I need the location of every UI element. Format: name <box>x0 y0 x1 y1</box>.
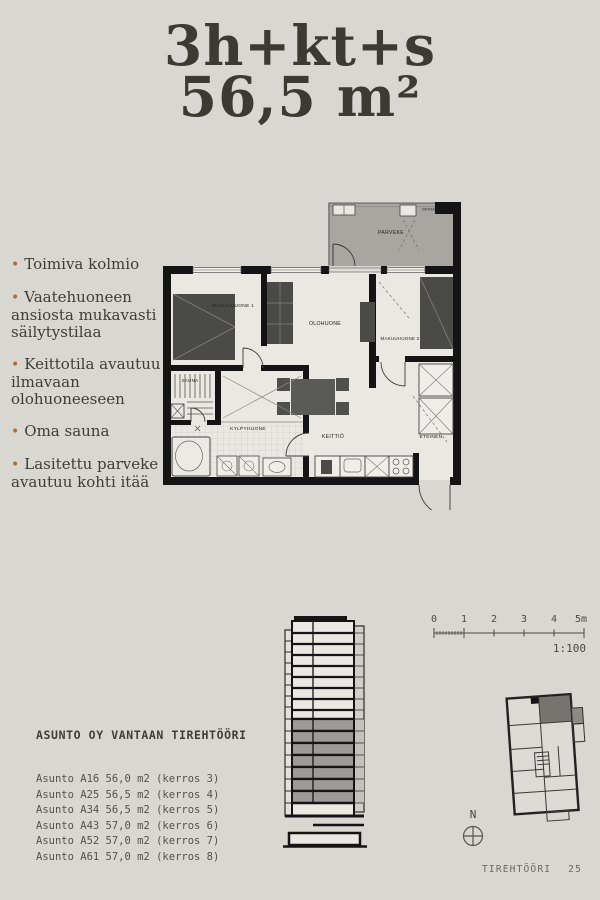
windows <box>193 268 425 273</box>
project-name: ASUNTO OY VANTAAN TIREHTÖÖRI <box>36 728 266 742</box>
bullet-icon: • <box>11 257 19 273</box>
hall-closets <box>419 364 453 434</box>
feature-item: •Oma sauna <box>11 423 163 441</box>
scale-tick-2: 2 <box>491 614 497 625</box>
north-label: N <box>470 808 477 821</box>
scale-tick-5: 5m <box>575 614 587 625</box>
floor-plan-svg: PARVEKE KIINTEÄ LASITUS <box>163 198 463 510</box>
page-title: 3h+kt+s 56,5 m² <box>0 20 600 122</box>
bullet-icon: • <box>11 457 19 473</box>
scale-tick-4: 4 <box>551 614 557 625</box>
project-info: ASUNTO OY VANTAAN TIREHTÖÖRI Asunto A16 … <box>36 728 266 866</box>
north-icon: N <box>458 806 490 852</box>
scale-ratio: 1:100 <box>553 642 586 655</box>
room-label-parveke: PARVEKE <box>378 230 404 236</box>
dining-table <box>291 379 335 415</box>
building-section <box>283 616 373 849</box>
unit-highlight <box>539 695 572 723</box>
apartment-list-item: Asunto A16 56,0 m2 (kerros 3) <box>36 772 266 788</box>
apartment-list-item: Asunto A61 57,0 m2 (kerros 8) <box>36 850 266 866</box>
bullet-icon: • <box>11 290 19 306</box>
building-section-svg <box>283 616 373 849</box>
site-plan <box>497 690 599 842</box>
balcony: PARVEKE KIINTEÄ LASITUS <box>328 202 461 266</box>
bathtub <box>172 437 210 476</box>
scale-bar: 0 1 2 3 4 5m 1:100 <box>430 611 590 657</box>
apartment-list-item: Asunto A25 56,5 m2 (kerros 4) <box>36 788 266 804</box>
bullet-icon: • <box>11 357 19 373</box>
bullet-icon: • <box>11 424 19 440</box>
apartment-list-item: Asunto A43 57,0 m2 (kerros 6) <box>36 819 266 835</box>
scale-bar-svg: 0 1 2 3 4 5m 1:100 <box>430 611 590 657</box>
scale-tick-0: 0 <box>431 614 437 625</box>
site-plan-svg <box>497 690 599 842</box>
stove <box>389 456 413 477</box>
feature-item: •Keittotila avautuu ilmavaan olohuoneese… <box>11 356 163 408</box>
feature-list: •Toimiva kolmio •Vaatehuoneen ansiosta m… <box>11 256 163 506</box>
balcony-glazing-note: KIINTEÄ LASITUS <box>422 208 449 212</box>
page-title-area: 56,5 m² <box>0 71 600 122</box>
room-label-kylpyhuone: KYLPYHUONE <box>230 426 266 432</box>
apartment-list-item: Asunto A34 56,5 m2 (kerros 5) <box>36 803 266 819</box>
room-label-sauna: SAUNA <box>182 378 199 383</box>
room-label-makuuhuone2: MAKUUHUONE 2 <box>381 336 420 341</box>
washbasin <box>263 458 291 476</box>
room-label-keittio: KEITTIÖ <box>322 433 344 440</box>
footer-project: TIREHTÖÖRI <box>482 864 551 875</box>
room-label-eteinen: ETEINEN <box>420 434 443 440</box>
room-label-makuuhuone1: MAKUUHUONE 1 <box>212 303 254 309</box>
apartment-list-item: Asunto A52 57,0 m2 (kerros 7) <box>36 834 266 850</box>
kitchen-counter <box>315 456 413 477</box>
floor-plan: PARVEKE KIINTEÄ LASITUS <box>163 198 463 510</box>
apartment-list: Asunto A16 56,0 m2 (kerros 3) Asunto A25… <box>36 772 266 866</box>
feature-item: •Toimiva kolmio <box>11 256 163 274</box>
room-label-olohuone: OLOHUONE <box>309 321 341 327</box>
north-indicator: N <box>458 806 490 852</box>
footer-page-number: 25 <box>568 864 582 875</box>
tv-bench <box>360 302 375 342</box>
feature-item: •Vaatehuoneen ansiosta mukavasti säilyty… <box>11 289 163 341</box>
scale-tick-3: 3 <box>521 614 527 625</box>
feature-item: •Lasitettu parveke avautuu kohti itää <box>11 456 163 491</box>
scale-tick-1: 1 <box>461 614 467 625</box>
page-footer: TIREHTÖÖRI 25 <box>482 864 582 875</box>
